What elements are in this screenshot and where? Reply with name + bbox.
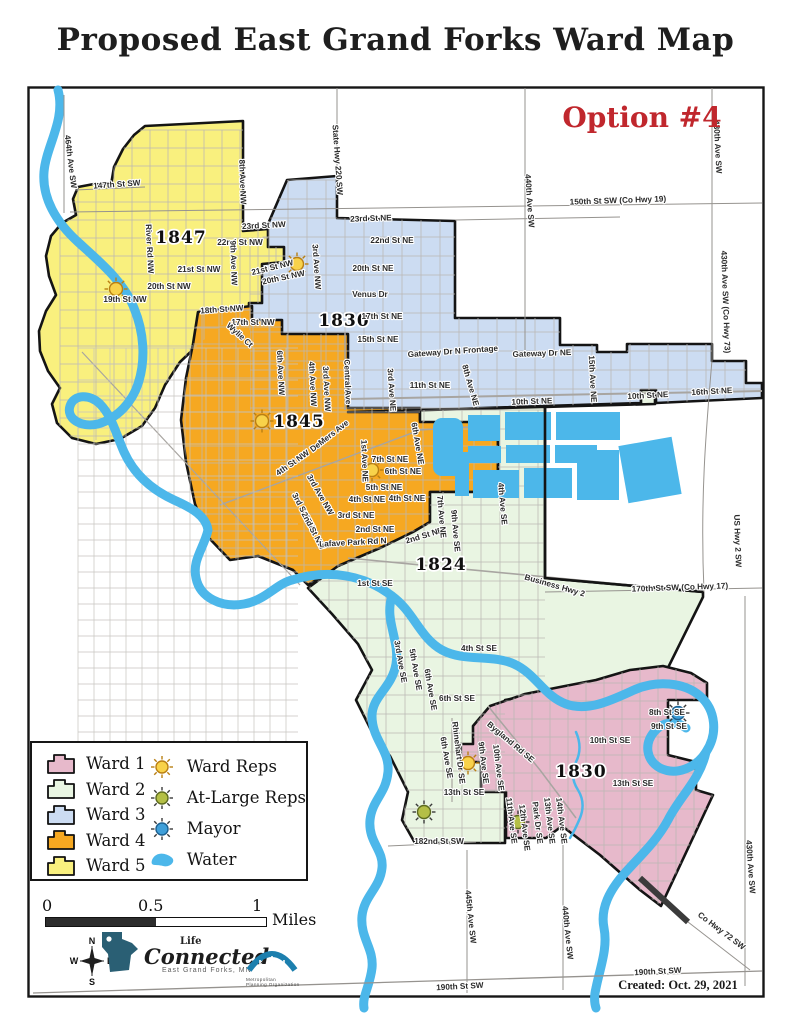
street-label: 6th St NE — [385, 467, 422, 476]
ward-color-swatch — [46, 804, 76, 826]
street-label: 1st St SE — [357, 579, 393, 588]
street-label: 20th St NE — [353, 264, 394, 273]
street-label: 11th St NE — [410, 381, 451, 390]
legend-ward-label: Ward 2 — [86, 780, 146, 799]
street-label: 13th St SE — [613, 779, 654, 788]
street-label: 8th St SE — [649, 708, 685, 717]
ward-rep-icon — [251, 410, 274, 433]
legend-ward-label: Ward 4 — [86, 831, 146, 850]
ward-number-label: 1847 — [155, 228, 206, 248]
street-label: 17th St NW — [231, 318, 274, 327]
legend-ward-row: Ward 3 — [46, 802, 147, 828]
street-label: 15th St NE — [358, 335, 399, 344]
ward-rep-icon — [151, 756, 173, 778]
street-label: Venus Dr — [352, 290, 388, 299]
street-label: 22nd St NE — [370, 236, 414, 245]
ward-sun-icon — [147, 754, 177, 780]
street-label: 10th St NE — [511, 396, 553, 406]
legend-ward-row: Ward 1 — [46, 751, 147, 777]
legend-ward-row: Ward 5 — [46, 853, 147, 879]
legend-symbol-row: At-Large Reps — [147, 782, 306, 813]
street-label: 2nd St NE — [356, 525, 395, 534]
ward-number-label: 1824 — [415, 555, 466, 575]
street-label: 13th St SE — [444, 788, 485, 797]
option-label: Option #4 — [552, 101, 732, 134]
legend-symbol-label: Water — [187, 850, 237, 869]
street-label: 22nd St NW — [217, 238, 263, 247]
street-label: 9th Ave NW — [228, 240, 239, 285]
street-label: 182nd St SW — [414, 837, 464, 846]
street-label: 23rd St NE — [350, 213, 392, 223]
street-label: 21st St NW — [178, 265, 221, 274]
street-label: 8th Ave NW — [237, 159, 248, 204]
page: Proposed East Grand Forks Ward Map — [0, 0, 791, 1024]
street-label: US Hwy 2 SW — [732, 514, 743, 567]
legend-symbol-row: Mayor — [147, 813, 306, 844]
ward-number-label: 1830 — [555, 762, 606, 782]
street-label: 6th St SE — [439, 694, 475, 703]
ward-number-label: 1845 — [273, 412, 324, 432]
scale-unit-label: Miles — [272, 910, 316, 929]
legend-box: Ward 1Ward 2Ward 3Ward 4Ward 5 Ward Reps… — [30, 741, 308, 881]
street-label: 19th St NW — [103, 295, 146, 304]
legend-ward-label: Ward 5 — [86, 856, 146, 875]
street-label: 17th St NE — [362, 312, 403, 321]
legend-symbol-row: Ward Reps — [147, 751, 306, 782]
atlarge-sun-icon — [147, 785, 177, 811]
street-label: 3rd St NE — [338, 511, 375, 520]
legend-symbol-list: Ward RepsAt-Large RepsMayorWater — [147, 751, 306, 879]
legend-ward-row: Ward 2 — [46, 777, 147, 803]
scale-bar-rule — [45, 917, 267, 927]
street-label: 9th St SE — [651, 722, 687, 731]
compass-north-label: N — [89, 936, 96, 946]
street-label: 4th St NE — [389, 494, 426, 503]
mpo-logo: Metropolitan Planning Organization — [246, 948, 316, 988]
minnesota-shape-icon — [100, 930, 142, 982]
life-connected-logo: Life Connected East Grand Forks, MN — [100, 930, 260, 992]
legend-ward-label: Ward 1 — [86, 754, 146, 773]
mpo-text-line2: Planning Organization — [246, 982, 316, 987]
created-date: Created: Oct. 29, 2021 — [588, 978, 768, 993]
street-label: 20th St NW — [147, 282, 190, 291]
compass-south-label: S — [89, 977, 95, 987]
scale-tick-1: 1 — [252, 896, 262, 915]
at-large-rep-icon — [413, 801, 436, 824]
bridge-arch-icon — [246, 948, 298, 972]
at-large-rep-icon — [151, 787, 173, 809]
water-icon — [147, 847, 177, 873]
legend-symbol-label: Mayor — [187, 819, 241, 838]
street-label: 10th St SE — [590, 736, 631, 745]
street-label: Central Ave — [342, 359, 353, 405]
legend-symbol-row: Water — [147, 844, 306, 875]
legend-symbol-label: Ward Reps — [187, 757, 277, 776]
legend-ward-row: Ward 4 — [46, 828, 147, 854]
ward-color-swatch — [46, 778, 76, 800]
street-label: 4th St SE — [461, 644, 497, 653]
ward-color-swatch — [46, 829, 76, 851]
ward-color-swatch — [46, 753, 76, 775]
mayor-icon — [151, 818, 173, 840]
mayor-sun-icon — [147, 816, 177, 842]
street-label: 1st Ave NE — [359, 440, 369, 483]
street-label: 4th St NE — [349, 495, 386, 504]
scale-tick-0: 0 — [42, 896, 52, 915]
compass-west-label: W — [70, 956, 79, 966]
ward-color-swatch — [46, 855, 76, 877]
legend-symbol-label: At-Large Reps — [187, 788, 306, 807]
street-label: 5th St NE — [366, 483, 403, 492]
legend-ward-list: Ward 1Ward 2Ward 3Ward 4Ward 5 — [46, 751, 147, 879]
legend-ward-label: Ward 3 — [86, 805, 146, 824]
scale-tick-half: 0.5 — [138, 896, 163, 915]
street-label: 7th St NE — [372, 455, 409, 464]
